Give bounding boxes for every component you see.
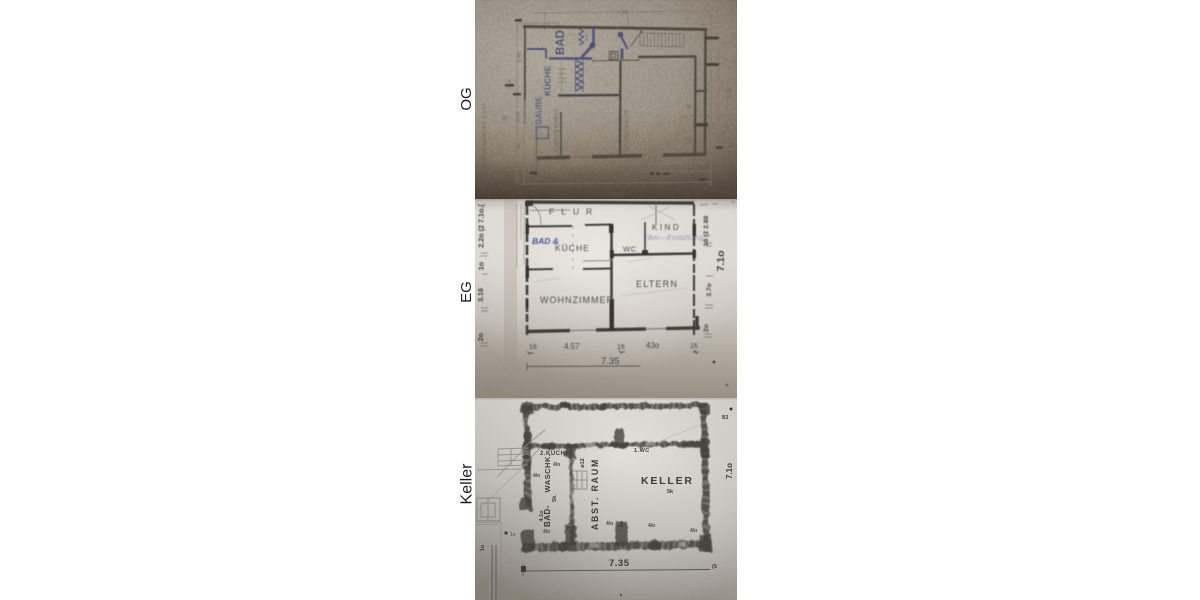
- svg-text:Keller: Keller: [459, 463, 476, 505]
- svg-text:EG: EG: [458, 281, 475, 303]
- svg-text:OG: OG: [458, 87, 475, 110]
